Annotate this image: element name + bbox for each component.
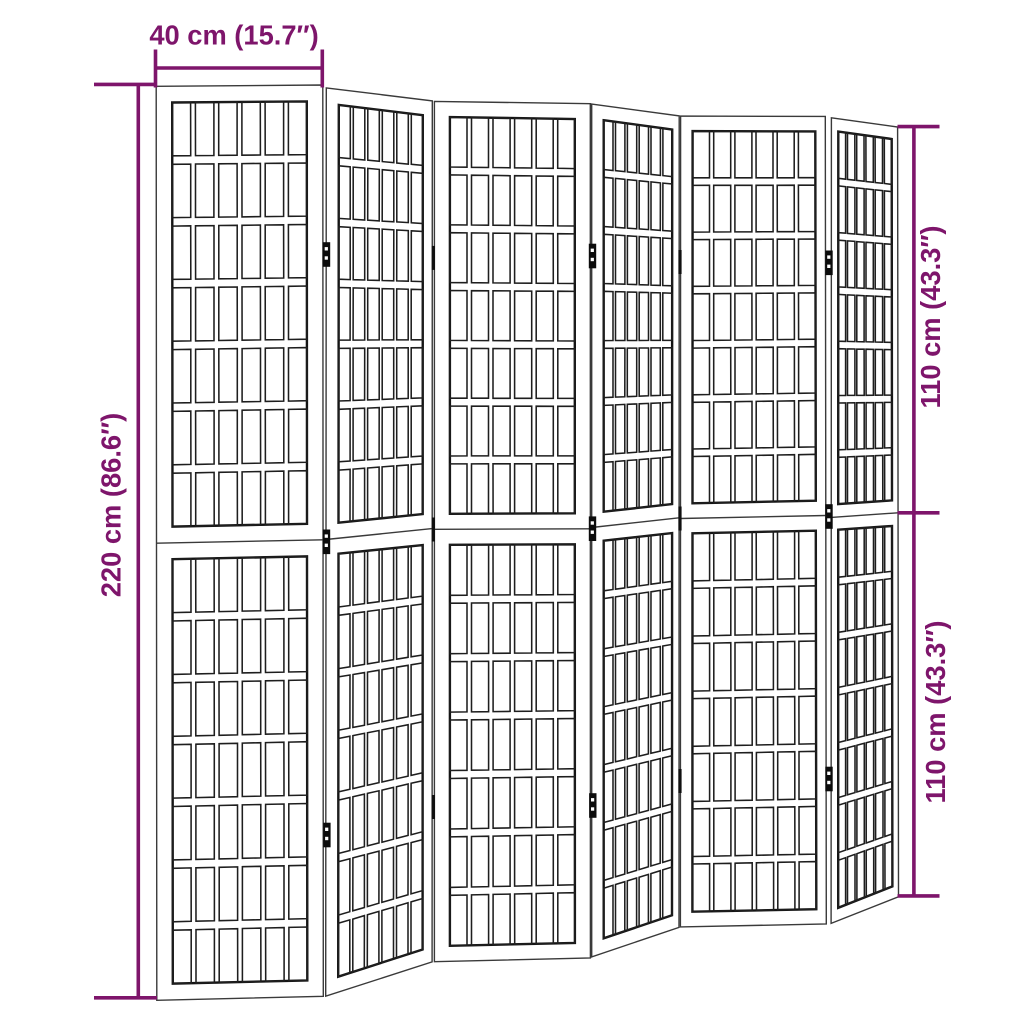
svg-text:40 cm (15.7″): 40 cm (15.7″) xyxy=(149,19,318,50)
svg-text:110 cm (43.3″): 110 cm (43.3″) xyxy=(920,620,951,803)
svg-text:110 cm (43.3″): 110 cm (43.3″) xyxy=(915,225,946,408)
svg-text:220 cm (86.6″): 220 cm (86.6″) xyxy=(96,413,127,598)
